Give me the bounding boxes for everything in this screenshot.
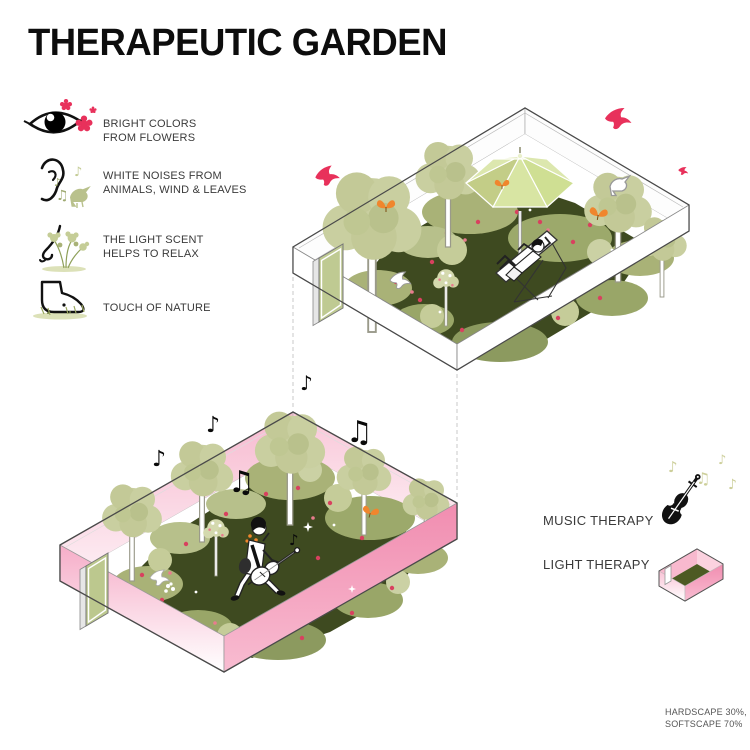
svg-text:♪: ♪: [300, 371, 313, 395]
footnote-line-2: SOFTSCAPE 70%: [665, 718, 747, 730]
footnote-line-1: HARDSCAPE 30%,: [665, 706, 747, 718]
scene-artwork: ♪ ♫ ♪: [0, 0, 750, 750]
scent-plant-icon: [42, 231, 89, 272]
sense-label-scent: THE LIGHT SCENT HELPS TO RELAX: [103, 233, 239, 261]
light-therapy-box-icon: [659, 549, 723, 601]
music-note-icon: ♪: [289, 531, 299, 549]
foot-icon: [33, 282, 87, 320]
light-therapy-label: LIGHT THERAPY: [543, 557, 650, 572]
svg-text:♫: ♫: [228, 465, 255, 500]
svg-text:♫: ♫: [696, 469, 710, 488]
music-garden-illustration: ♪: [60, 412, 457, 672]
music-therapy-label: MUSIC THERAPY: [543, 513, 654, 528]
sense-label-colors: BRIGHT COLORS FROM FLOWERS: [103, 117, 225, 145]
svg-text:♪: ♪: [206, 413, 220, 438]
relaxation-garden-illustration: [293, 108, 689, 370]
svg-text:♪: ♪: [718, 453, 726, 468]
sense-label-noises: WHITE NOISES FROM ANIMALS, WIND & LEAVES: [103, 169, 271, 197]
eye-icon: [24, 99, 97, 133]
page-title: THERAPEUTIC GARDEN: [28, 24, 447, 62]
hardscape-softscape-note: HARDSCAPE 30%, SOFTSCAPE 70%: [665, 706, 747, 730]
nose-icon: [40, 226, 89, 272]
sense-label-touch: TOUCH OF NATURE: [103, 301, 211, 315]
svg-text:♪: ♪: [668, 458, 678, 476]
ear-icon: ♪ ♫ ♪: [42, 160, 91, 208]
svg-text:♪: ♪: [74, 165, 82, 180]
violin-icon: ♪ ♪ ♫ ♪: [656, 453, 737, 530]
infographic-canvas: ♪ ♫ ♪: [0, 0, 750, 750]
svg-text:♫: ♫: [56, 188, 69, 204]
svg-text:♪: ♪: [152, 447, 166, 472]
svg-text:♫: ♫: [346, 415, 373, 450]
svg-text:♪: ♪: [728, 477, 737, 493]
perched-bird-icon: [70, 186, 91, 208]
